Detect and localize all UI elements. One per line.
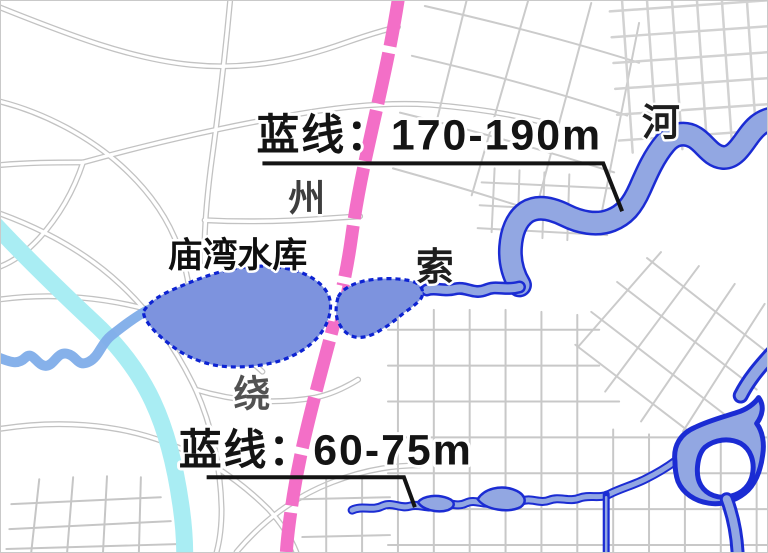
- reservoir-west-lobe: [144, 266, 331, 367]
- planning-map: 蓝线：170-190m 蓝线：60-75m 庙湾水库 州 索 绕 河: [0, 0, 768, 553]
- midright-diamond-grid: [575, 252, 766, 431]
- label-suo: 索: [416, 247, 454, 289]
- ring-pond: [675, 398, 764, 504]
- reservoir-east-lobe: [336, 279, 423, 338]
- lower-callout-text: 蓝线：60-75m: [179, 426, 473, 474]
- label-reservoir-name: 庙湾水库: [168, 235, 307, 275]
- label-rao: 绕: [234, 374, 271, 415]
- southwest-grid: [6, 476, 180, 552]
- label-zhou: 州: [288, 178, 325, 219]
- map-canvas: 蓝线：170-190m 蓝线：60-75m 庙湾水库 州 索 绕 河: [1, 1, 767, 552]
- label-he: 河: [642, 103, 680, 145]
- upper-callout-text: 蓝线：170-190m: [256, 111, 602, 159]
